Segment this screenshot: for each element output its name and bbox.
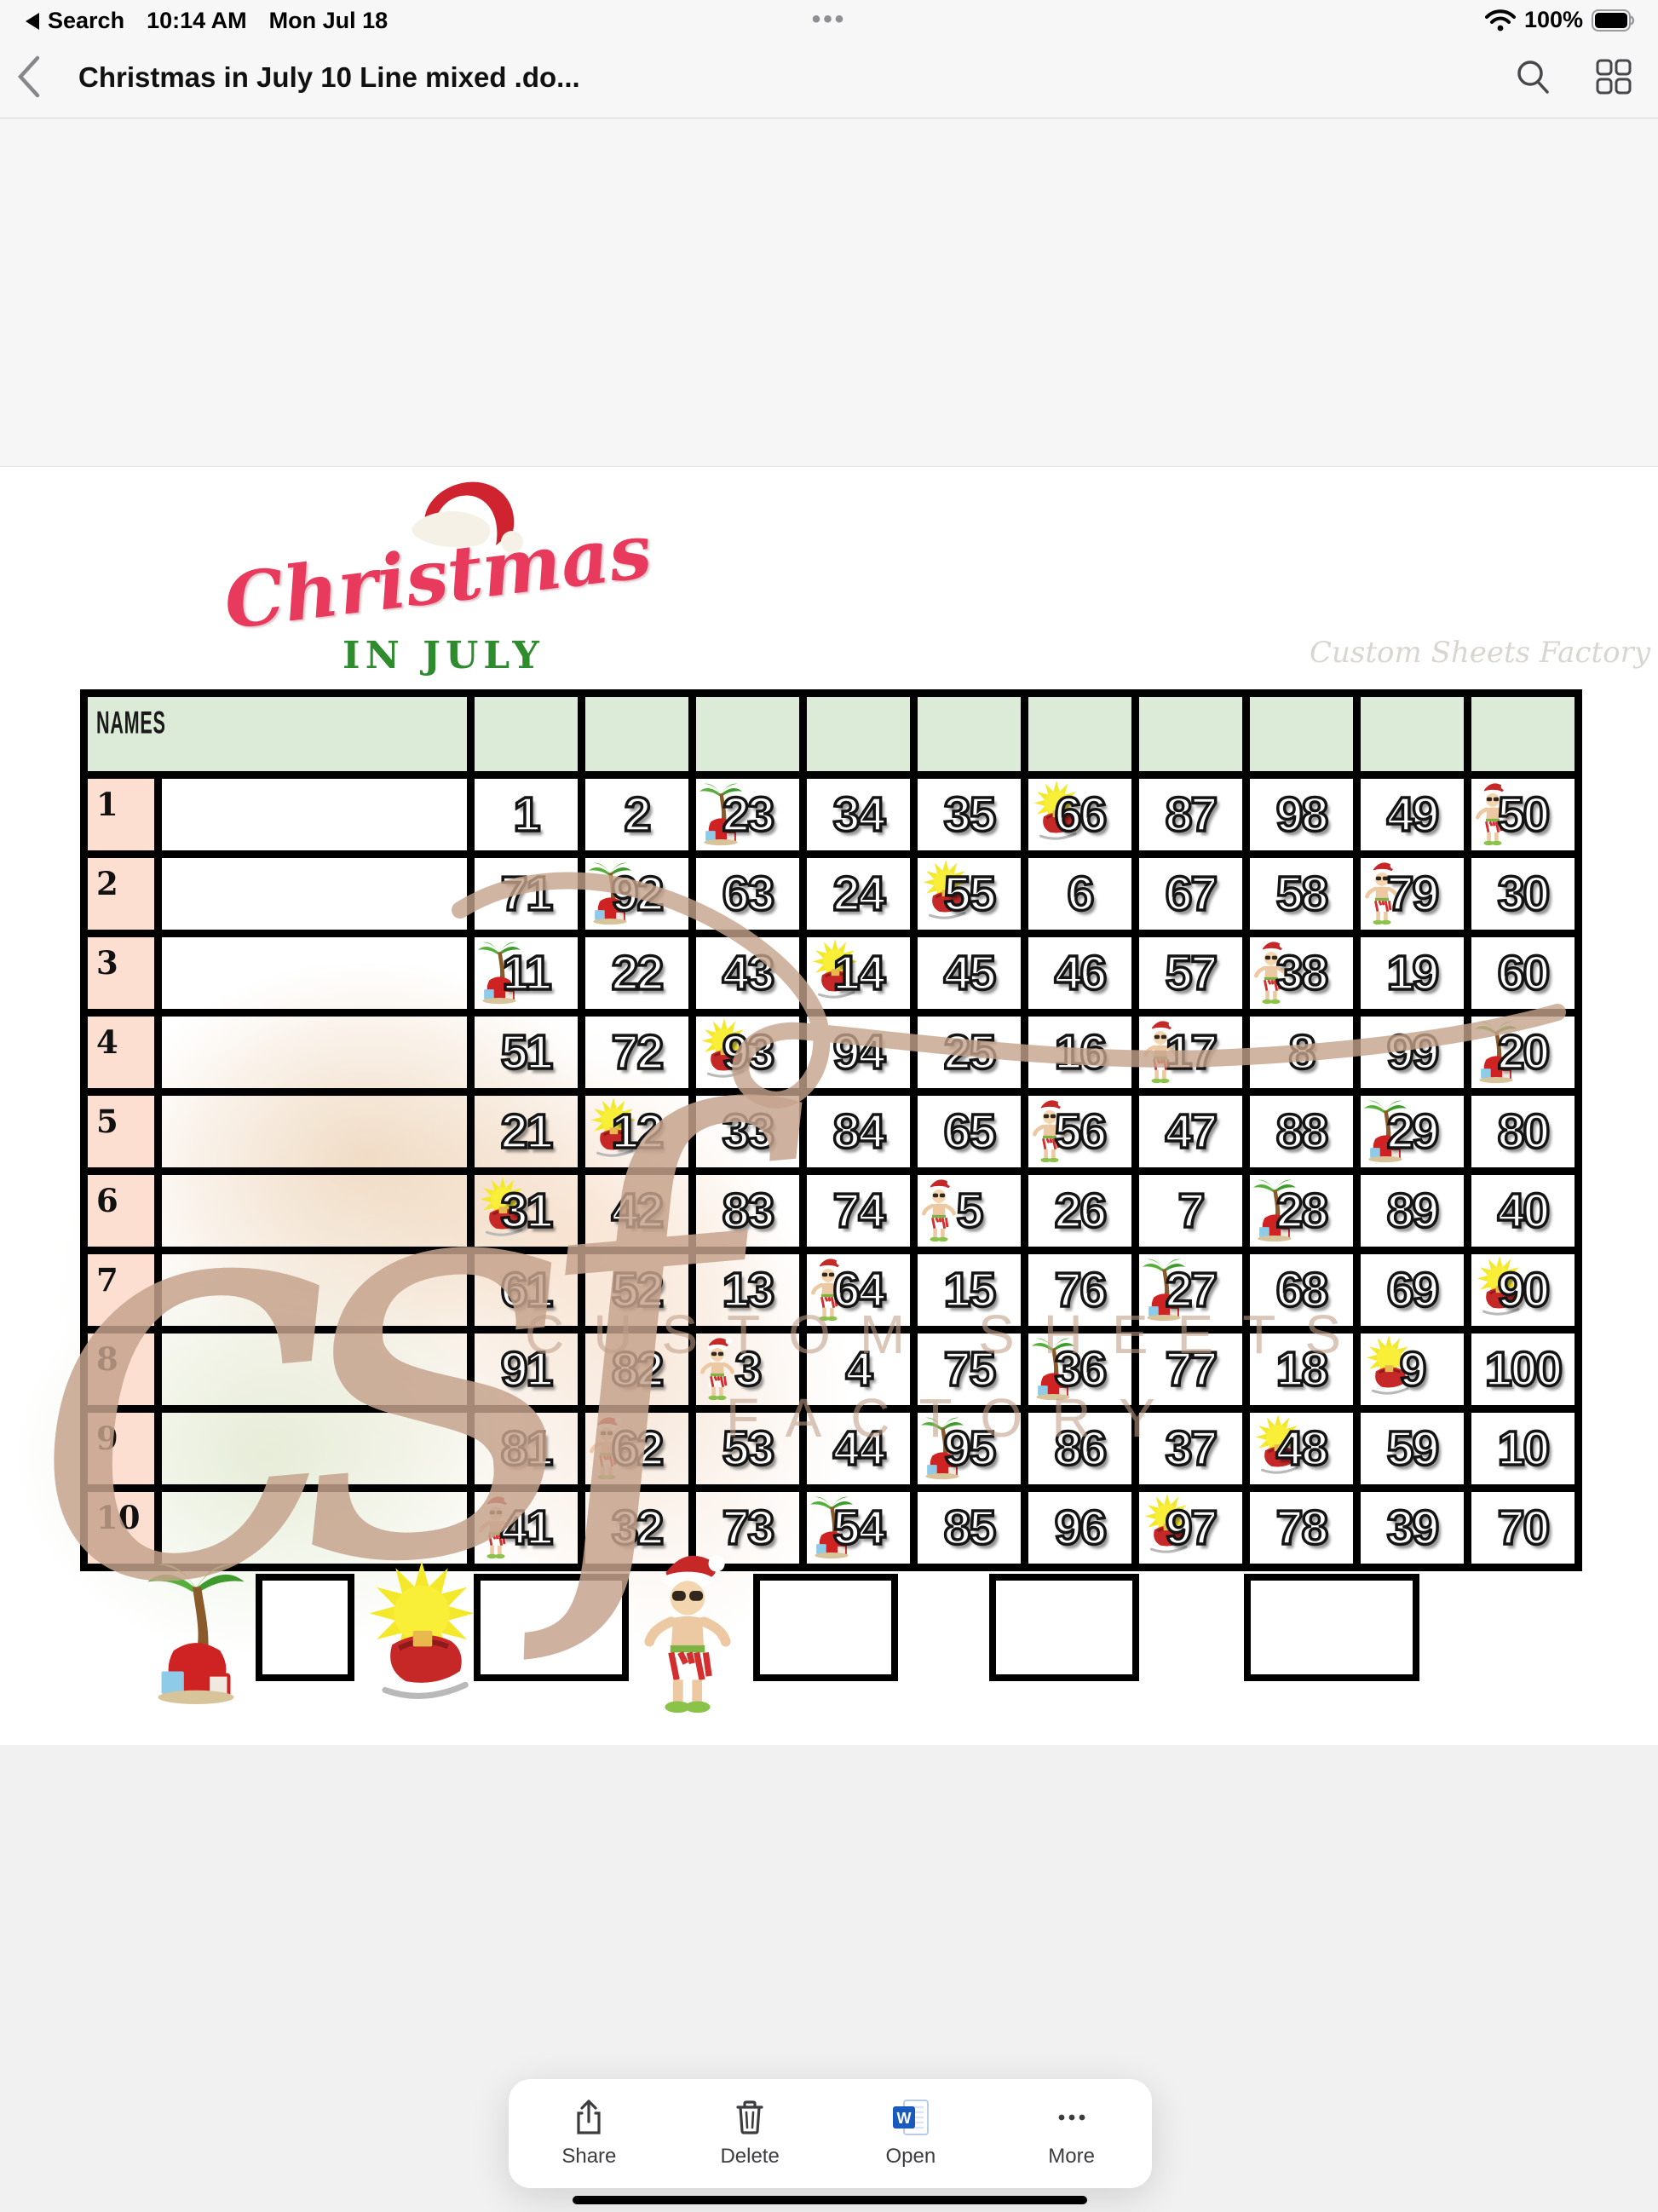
cell-number: 84	[833, 1103, 884, 1160]
cell-number: 68	[1276, 1262, 1327, 1318]
number-cell: 38	[1250, 937, 1361, 1017]
cell-number: 87	[1166, 786, 1216, 843]
column-header-cell	[1361, 697, 1471, 779]
number-cell: 47	[1139, 1096, 1250, 1175]
number-cell: 62	[585, 1413, 696, 1492]
player-name-cell	[162, 858, 475, 937]
number-cell: 21	[475, 1096, 585, 1175]
more-button[interactable]: More	[991, 2079, 1152, 2188]
number-cell: 3	[696, 1334, 807, 1413]
legend-box	[989, 1574, 1139, 1681]
more-icon	[1053, 2099, 1091, 2136]
number-cell: 44	[807, 1413, 918, 1492]
cell-number: 77	[1166, 1341, 1216, 1397]
cell-number: 93	[722, 1024, 773, 1080]
line-number-label: 8	[96, 1340, 118, 1378]
number-cell: 39	[1361, 1492, 1471, 1564]
number-cell: 51	[475, 1017, 585, 1096]
number-cell: 97	[1139, 1492, 1250, 1564]
bottom-toolbar: Share Delete WOpen More	[509, 2079, 1152, 2188]
cell-number: 51	[501, 1024, 551, 1080]
number-cell: 23	[696, 779, 807, 858]
number-cell: 86	[1028, 1413, 1139, 1492]
share-icon	[572, 2099, 606, 2136]
cell-number: 17	[1166, 1024, 1216, 1080]
delete-button[interactable]: Delete	[670, 2079, 831, 2188]
cell-number: 40	[1498, 1183, 1548, 1239]
cell-number: 30	[1498, 866, 1548, 922]
cell-number: 24	[833, 866, 884, 922]
santa-icon	[699, 1335, 735, 1402]
cell-number: 61	[501, 1262, 551, 1318]
cell-number: 54	[833, 1500, 884, 1556]
cell-number: 59	[1387, 1420, 1437, 1477]
number-cell: 93	[696, 1017, 807, 1096]
number-cell: 1	[475, 779, 585, 858]
toolbar-button-label: Share	[561, 2145, 616, 2169]
cell-number: 1	[514, 786, 539, 843]
number-cell: 79	[1361, 858, 1471, 937]
number-cell: 42	[585, 1175, 696, 1254]
number-cell: 57	[1139, 937, 1250, 1017]
number-cell: 52	[585, 1254, 696, 1334]
player-name-cell	[162, 779, 475, 858]
cell-number: 25	[944, 1024, 994, 1080]
cell-number: 49	[1387, 786, 1437, 843]
cell-number: 90	[1498, 1262, 1548, 1318]
number-cell: 74	[807, 1175, 918, 1254]
cell-number: 56	[1055, 1103, 1105, 1160]
number-cell: 8	[1250, 1017, 1361, 1096]
cell-number: 86	[1055, 1420, 1105, 1477]
logo-subtitle: IN JULY	[343, 634, 544, 677]
number-cell: 56	[1028, 1096, 1139, 1175]
cell-number: 46	[1055, 945, 1105, 1001]
cell-number: 39	[1387, 1500, 1437, 1556]
cell-number: 76	[1055, 1262, 1105, 1318]
cell-number: 12	[612, 1103, 662, 1160]
number-cell: 18	[1250, 1334, 1361, 1413]
line-number-cell: 2	[88, 858, 162, 937]
player-name-cell	[162, 1492, 475, 1564]
number-cell: 98	[1250, 779, 1361, 858]
line-number-label: 6	[96, 1182, 118, 1219]
number-cell: 11	[475, 937, 585, 1017]
cell-number: 16	[1055, 1024, 1105, 1080]
cell-number: 43	[722, 945, 773, 1001]
cell-number: 89	[1387, 1183, 1437, 1239]
cell-number: 13	[722, 1262, 773, 1318]
number-cell: 96	[1028, 1492, 1139, 1564]
screen: Search 10:14 AM Mon Jul 18 ••• 100%	[0, 0, 1658, 2212]
cell-number: 88	[1276, 1103, 1327, 1160]
search-button[interactable]	[1515, 58, 1551, 95]
number-cell: 78	[1250, 1492, 1361, 1564]
cell-number: 28	[1276, 1183, 1327, 1239]
cell-number: 5	[957, 1183, 982, 1239]
legend-box	[1244, 1574, 1419, 1681]
number-cell: 76	[1028, 1254, 1139, 1334]
line-number-label: 1	[96, 786, 118, 823]
cell-number: 70	[1498, 1500, 1548, 1556]
column-header-cell	[807, 697, 918, 779]
line-number-cell: 4	[88, 1017, 162, 1096]
column-header-cell	[1139, 697, 1250, 779]
line-number-cell: 8	[88, 1334, 162, 1413]
number-cell: 25	[918, 1017, 1028, 1096]
number-cell: 29	[1361, 1096, 1471, 1175]
cell-number: 65	[944, 1103, 994, 1160]
cell-number: 69	[1387, 1262, 1437, 1318]
toolbar-button-label: More	[1048, 2145, 1095, 2169]
number-cell: 24	[807, 858, 918, 937]
cell-number: 79	[1387, 866, 1437, 922]
line-number-cell: 1	[88, 779, 162, 858]
number-cell: 5	[918, 1175, 1028, 1254]
document-page: Christmas IN JULY Custom Sheets Factory …	[0, 466, 1658, 1746]
number-cell: 34	[807, 779, 918, 858]
number-cell: 60	[1471, 937, 1575, 1017]
number-cell: 14	[807, 937, 918, 1017]
player-name-cell	[162, 1413, 475, 1492]
cell-number: 78	[1276, 1500, 1327, 1556]
battery-percent: 100%	[1524, 7, 1583, 33]
cell-number: 10	[1498, 1420, 1548, 1477]
line-number-label: 5	[96, 1103, 118, 1140]
number-cell: 89	[1361, 1175, 1471, 1254]
number-cell: 65	[918, 1096, 1028, 1175]
number-cell: 19	[1361, 937, 1471, 1017]
number-cell: 75	[918, 1334, 1028, 1413]
number-cell: 92	[585, 858, 696, 937]
player-name-cell	[162, 1334, 475, 1413]
toolbar-button-label: Delete	[720, 2145, 779, 2169]
cell-number: 34	[833, 786, 884, 843]
names-header-label: NAMES	[96, 706, 166, 742]
cell-number: 47	[1166, 1103, 1216, 1160]
player-name-cell	[162, 1254, 475, 1334]
cell-number: 60	[1498, 945, 1548, 1001]
number-cell: 26	[1028, 1175, 1139, 1254]
number-cell: 63	[696, 858, 807, 937]
line-number-label: 10	[96, 1499, 141, 1536]
number-cell: 43	[696, 937, 807, 1017]
cell-number: 3	[735, 1341, 761, 1397]
number-cell: 88	[1250, 1096, 1361, 1175]
cell-number: 26	[1055, 1183, 1105, 1239]
number-cell: 94	[807, 1017, 918, 1096]
number-cell: 91	[475, 1334, 585, 1413]
cell-number: 62	[612, 1420, 662, 1477]
line-number-label: 9	[96, 1420, 118, 1457]
number-cell: 50	[1471, 779, 1575, 858]
player-name-cell	[162, 1017, 475, 1096]
line-number-label: 7	[96, 1261, 118, 1299]
cell-number: 72	[612, 1024, 662, 1080]
cell-number: 11	[502, 945, 550, 1001]
cell-number: 48	[1276, 1420, 1327, 1477]
cell-number: 67	[1166, 866, 1216, 922]
cell-number: 66	[1055, 786, 1105, 843]
cell-number: 36	[1055, 1341, 1105, 1397]
sun-sleigh-icon	[358, 1561, 486, 1708]
cell-number: 45	[944, 945, 994, 1001]
legend-box	[474, 1574, 629, 1681]
document-margin-top	[0, 118, 1658, 466]
number-cell: 81	[475, 1413, 585, 1492]
line-number-cell: 10	[88, 1492, 162, 1564]
cell-number: 55	[944, 866, 994, 922]
cell-number: 98	[1276, 786, 1327, 843]
cell-number: 23	[722, 786, 773, 843]
cell-number: 64	[833, 1262, 884, 1318]
number-cell: 95	[918, 1413, 1028, 1492]
number-cell: 37	[1139, 1413, 1250, 1492]
cell-number: 81	[501, 1420, 551, 1477]
trash-icon	[733, 2099, 767, 2136]
number-cell: 90	[1471, 1254, 1575, 1334]
word-icon: W	[891, 2099, 930, 2136]
number-cell: 6	[1028, 858, 1139, 937]
number-cell: 35	[918, 779, 1028, 858]
number-cell: 36	[1028, 1334, 1139, 1413]
cell-number: 73	[722, 1500, 773, 1556]
home-indicator[interactable]	[573, 2196, 1087, 2204]
cell-number: 27	[1166, 1262, 1216, 1318]
number-cell: 70	[1471, 1492, 1575, 1564]
svg-text:W: W	[896, 2110, 911, 2127]
grid-view-icon	[1595, 58, 1632, 95]
number-cell: 33	[696, 1096, 807, 1175]
cell-number: 42	[612, 1183, 662, 1239]
search-icon	[1515, 58, 1551, 95]
cell-number: 95	[944, 1420, 994, 1477]
christmas-in-july-logo: Christmas IN JULY	[223, 491, 598, 687]
line-number-cell: 5	[88, 1096, 162, 1175]
number-cell: 82	[585, 1334, 696, 1413]
cell-number: 99	[1387, 1024, 1437, 1080]
column-header-cell	[1028, 697, 1139, 779]
number-cell: 45	[918, 937, 1028, 1017]
legend-box	[753, 1574, 898, 1681]
cell-number: 53	[722, 1420, 773, 1477]
santa-hat-icon	[400, 470, 528, 573]
number-cell: 46	[1028, 937, 1139, 1017]
number-cell: 84	[807, 1096, 918, 1175]
nav-bar: Christmas in July 10 Line mixed .do...	[0, 39, 1658, 118]
cell-number: 75	[944, 1341, 994, 1397]
column-header-cell	[696, 697, 807, 779]
cell-number: 74	[833, 1183, 884, 1239]
names-header-cell: NAMES	[88, 697, 475, 779]
cell-number: 35	[944, 786, 994, 843]
santa-icon	[921, 1177, 957, 1243]
battery-icon	[1592, 9, 1636, 32]
number-cell: 41	[475, 1492, 585, 1564]
number-cell: 9	[1361, 1334, 1471, 1413]
bingo-grid: NAMES112 233435 66879849 50271 926324	[80, 689, 1582, 1571]
status-center-dots: •••	[0, 5, 1658, 34]
column-header-cell	[918, 697, 1028, 779]
number-cell: 73	[696, 1492, 807, 1564]
number-cell: 27	[1139, 1254, 1250, 1334]
number-cell: 2	[585, 779, 696, 858]
number-cell: 99	[1361, 1017, 1471, 1096]
cell-number: 50	[1498, 786, 1548, 843]
line-number-cell: 3	[88, 937, 162, 1017]
number-cell: 77	[1139, 1334, 1250, 1413]
number-cell: 85	[918, 1492, 1028, 1564]
cell-number: 96	[1055, 1500, 1105, 1556]
number-cell: 40	[1471, 1175, 1575, 1254]
cell-number: 41	[501, 1500, 551, 1556]
number-cell: 64	[807, 1254, 918, 1334]
share-button[interactable]: Share	[509, 2079, 670, 2188]
number-cell: 12	[585, 1096, 696, 1175]
number-cell: 87	[1139, 779, 1250, 858]
column-header-cell	[1471, 697, 1575, 779]
number-cell: 31	[475, 1175, 585, 1254]
cell-number: 44	[833, 1420, 884, 1477]
brand-small-watermark: Custom Sheets Factory	[1310, 636, 1650, 670]
cell-number: 82	[612, 1341, 662, 1397]
cell-number: 37	[1166, 1420, 1216, 1477]
cell-number: 92	[612, 866, 662, 922]
cell-number: 71	[501, 866, 551, 922]
column-header-cell	[475, 697, 585, 779]
cell-number: 33	[722, 1103, 773, 1160]
thumbnail-grid-button[interactable]	[1595, 58, 1632, 95]
cell-number: 63	[722, 866, 773, 922]
column-header-cell	[585, 697, 696, 779]
number-cell: 17	[1139, 1017, 1250, 1096]
number-cell: 67	[1139, 858, 1250, 937]
cell-number: 8	[1289, 1024, 1315, 1080]
number-cell: 66	[1028, 779, 1139, 858]
cell-number: 9	[1400, 1341, 1425, 1397]
legend-box	[256, 1574, 354, 1681]
cell-number: 91	[501, 1341, 551, 1397]
number-cell: 58	[1250, 858, 1361, 937]
number-cell: 4	[807, 1334, 918, 1413]
chevron-left-icon	[15, 55, 41, 99]
number-cell: 59	[1361, 1413, 1471, 1492]
line-number-cell: 7	[88, 1254, 162, 1334]
number-cell: 20	[1471, 1017, 1575, 1096]
toolbar-button-label: Open	[886, 2145, 936, 2169]
cell-number: 15	[944, 1262, 994, 1318]
palm-tree-icon	[136, 1561, 256, 1706]
number-cell: 72	[585, 1017, 696, 1096]
number-cell: 54	[807, 1492, 918, 1564]
number-cell: 32	[585, 1492, 696, 1564]
santa-icon	[637, 1549, 738, 1716]
number-cell: 7	[1139, 1175, 1250, 1254]
cell-number: 4	[846, 1341, 872, 1397]
line-number-cell: 9	[88, 1413, 162, 1492]
cell-number: 6	[1068, 866, 1093, 922]
column-header-cell	[1250, 697, 1361, 779]
number-cell: 69	[1361, 1254, 1471, 1334]
player-name-cell	[162, 937, 475, 1017]
back-button[interactable]	[15, 55, 41, 99]
cell-number: 94	[833, 1024, 884, 1080]
cell-number: 100	[1485, 1341, 1561, 1397]
cell-number: 85	[944, 1500, 994, 1556]
number-cell: 55	[918, 858, 1028, 937]
open-button[interactable]: WOpen	[831, 2079, 992, 2188]
number-cell: 71	[475, 858, 585, 937]
document-title: Christmas in July 10 Line mixed .do...	[78, 61, 580, 94]
number-cell: 61	[475, 1254, 585, 1334]
number-cell: 49	[1361, 779, 1471, 858]
cell-number: 31	[501, 1183, 551, 1239]
cell-number: 80	[1498, 1103, 1548, 1160]
number-cell: 53	[696, 1413, 807, 1492]
number-cell: 30	[1471, 858, 1575, 937]
status-bar: Search 10:14 AM Mon Jul 18 ••• 100%	[0, 0, 1658, 39]
number-cell: 15	[918, 1254, 1028, 1334]
line-number-label: 2	[96, 865, 118, 902]
cell-number: 29	[1387, 1103, 1437, 1160]
number-cell: 48	[1250, 1413, 1361, 1492]
number-cell: 83	[696, 1175, 807, 1254]
number-cell: 16	[1028, 1017, 1139, 1096]
cell-number: 38	[1276, 945, 1327, 1001]
cell-number: 97	[1166, 1500, 1216, 1556]
number-cell: 10	[1471, 1413, 1575, 1492]
cell-number: 32	[612, 1500, 662, 1556]
wifi-icon	[1485, 9, 1516, 32]
cell-number: 19	[1387, 945, 1437, 1001]
cell-number: 20	[1498, 1024, 1548, 1080]
cell-number: 21	[501, 1103, 551, 1160]
line-number-label: 3	[96, 944, 118, 982]
number-cell: 68	[1250, 1254, 1361, 1334]
player-name-cell	[162, 1096, 475, 1175]
player-name-cell	[162, 1175, 475, 1254]
cell-number: 57	[1166, 945, 1216, 1001]
cell-number: 14	[833, 945, 884, 1001]
line-number-label: 4	[96, 1023, 118, 1061]
cell-number: 22	[612, 945, 662, 1001]
number-cell: 100	[1471, 1334, 1575, 1413]
cell-number: 83	[722, 1183, 773, 1239]
number-cell: 28	[1250, 1175, 1361, 1254]
number-cell: 80	[1471, 1096, 1575, 1175]
cell-number: 7	[1178, 1183, 1204, 1239]
number-cell: 22	[585, 937, 696, 1017]
number-cell: 13	[696, 1254, 807, 1334]
cell-number: 58	[1276, 866, 1327, 922]
cell-number: 2	[625, 786, 650, 843]
cell-number: 52	[612, 1262, 662, 1318]
cell-number: 18	[1276, 1341, 1327, 1397]
line-number-cell: 6	[88, 1175, 162, 1254]
